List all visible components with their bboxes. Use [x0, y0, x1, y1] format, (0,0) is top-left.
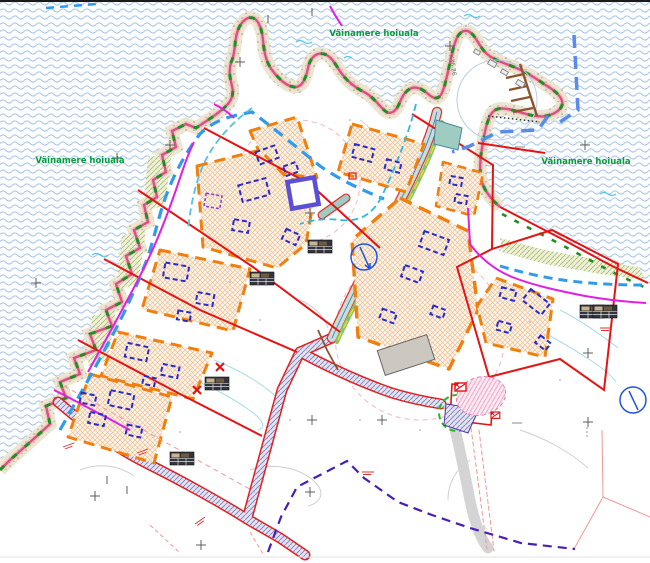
info-table	[205, 377, 229, 390]
flag-marker	[455, 383, 466, 391]
top-frame-edge	[0, 0, 650, 2]
retained-building	[287, 177, 318, 208]
info-table	[308, 240, 332, 253]
info-table	[250, 272, 274, 285]
protected-area-label: Väinamere hoiuala	[329, 29, 419, 39]
protected-area-label: Väinamere hoiuala	[541, 157, 631, 167]
info-table	[593, 305, 617, 318]
info-table	[170, 452, 194, 465]
plan-map: Väinamere hoiuala Väinamere hoiuala Väin…	[0, 0, 650, 563]
protected-area-label: Väinamere hoiuala	[35, 156, 125, 166]
flag-marker	[491, 412, 500, 418]
map-canvas: Väinamere hoiuala Väinamere hoiuala Väin…	[0, 0, 650, 563]
